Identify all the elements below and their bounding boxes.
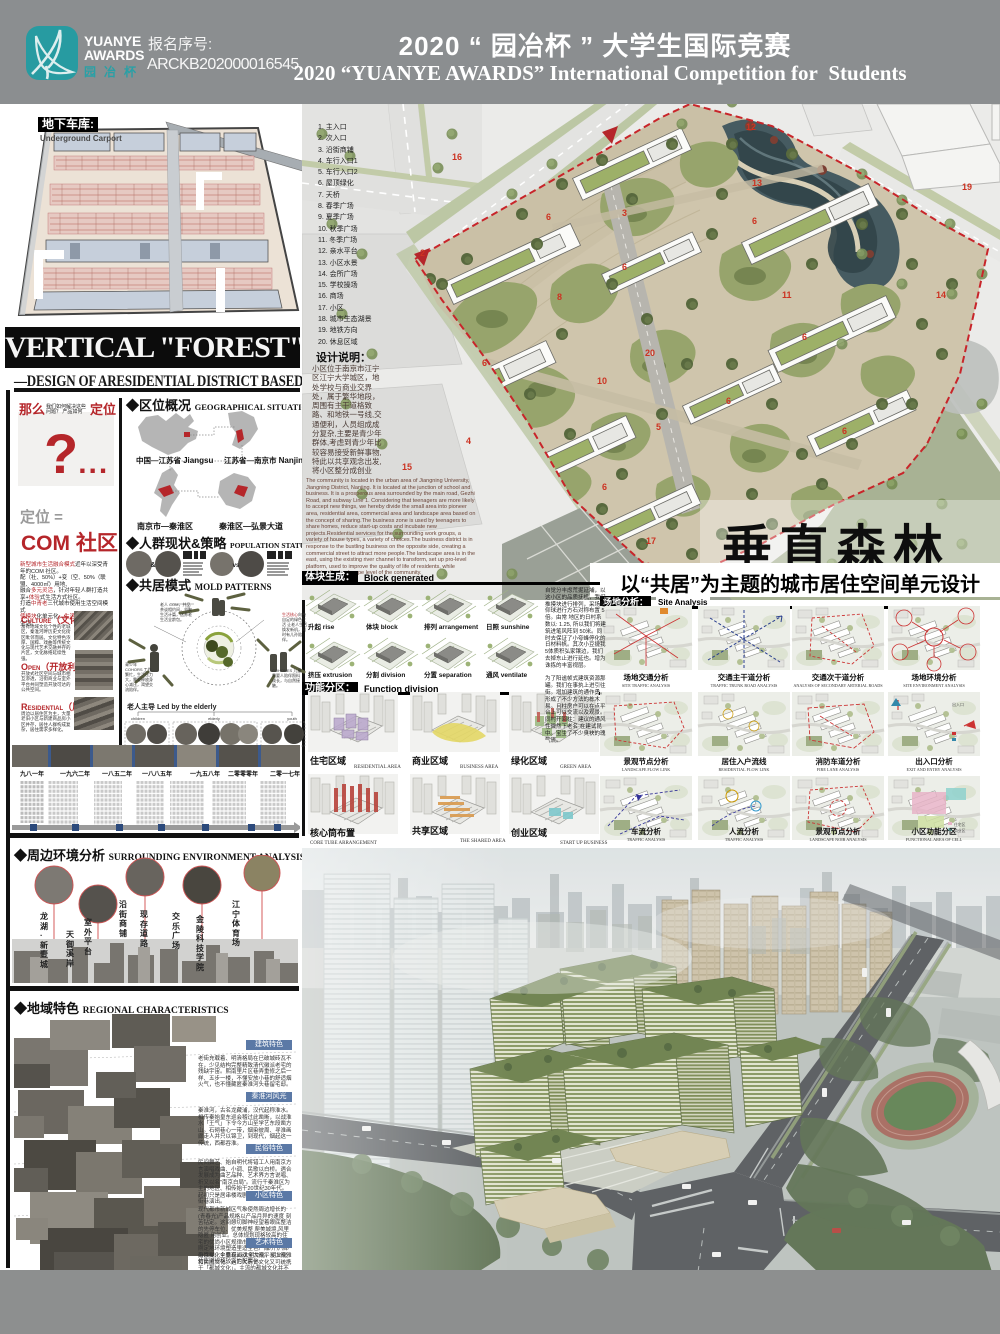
svg-text:youth: youth [287,716,297,721]
svg-text:交通次干道分析: 交通次干道分析 [812,672,865,682]
svg-text:分置 separation: 分置 separation [424,670,472,679]
svg-text:ANALYSIS OF SECONDARY ARTERIAL: ANALYSIS OF SECONDARY ARTERIAL ROADS [793,683,883,688]
svg-text:交通主干道分析: 交通主干道分析 [718,672,771,682]
svg-text:绿化区域: 绿化区域 [511,755,547,766]
svg-text:日照 sunshine: 日照 sunshine [486,622,530,631]
svg-text:住宅区域: 住宅区域 [310,755,346,766]
svg-text:elderly: elderly [208,716,220,721]
svg-text:居住入户流线: 居住入户流线 [722,756,767,766]
svg-text:20: 20 [645,348,655,358]
svg-text:4: 4 [466,436,471,446]
svg-text:景观节点分析: 景观节点分析 [816,826,861,836]
svg-text:12: 12 [746,122,756,132]
svg-text:6: 6 [726,396,731,406]
svg-text:一八八五年: 一八八五年 [142,770,172,778]
svg-text:九八一年: 九八一年 [19,770,44,778]
svg-text:人流分析: 人流分析 [729,826,759,836]
svg-text:通风 ventilate: 通风 ventilate [486,670,528,679]
svg-text:景观节点分析: 景观节点分析 [624,756,669,766]
svg-text:场地环境分析: 场地环境分析 [912,672,957,682]
svg-text:分割 division: 分割 division [366,670,405,679]
svg-text:核心筒布置: 核心筒布置 [310,827,355,838]
svg-text:出入口: 出入口 [952,701,964,707]
svg-text:一八五二年: 一八五二年 [102,770,132,778]
svg-text:创业区域: 创业区域 [510,827,547,838]
svg-text:二零一七年: 二零一七年 [270,770,300,778]
svg-text:16: 16 [452,152,462,162]
svg-text:出入口分析: 出入口分析 [915,756,953,766]
svg-text:6: 6 [602,482,607,492]
svg-text:TRAFFIC TRUNK ROAD ANALYSIS: TRAFFIC TRUNK ROAD ANALYSIS [711,683,778,688]
svg-text:6: 6 [842,426,847,436]
svg-text:TRAFFIC ANALYSIS: TRAFFIC ANALYSIS [725,837,764,842]
svg-text:RESIDENTIAL FLOW LINK: RESIDENTIAL FLOW LINK [719,767,770,772]
svg-text:体块 block: 体块 block [366,622,398,631]
svg-text:6: 6 [802,332,807,342]
svg-text:6: 6 [546,212,551,222]
svg-text:6: 6 [622,262,627,272]
svg-text:&: & [150,562,155,569]
svg-text:LANDSCAPE FLOW LINK: LANDSCAPE FLOW LINK [622,767,671,772]
svg-text:CORE TUBE ARRANGEMENT: CORE TUBE ARRANGEMENT [310,841,377,846]
svg-text:vs: vs [233,563,240,569]
svg-text:13: 13 [752,178,762,188]
svg-text:共享区域: 共享区域 [412,825,448,836]
svg-text:19: 19 [962,182,972,192]
svg-text:二零零零年: 二零零零年 [228,770,258,778]
svg-text:SITE TRAFFIC ANALYSIS: SITE TRAFFIC ANALYSIS [622,683,671,688]
svg-text:START UP BUSINESS: START UP BUSINESS [560,841,608,846]
svg-text:FUNCTIONAL AREA OF CELL: FUNCTIONAL AREA OF CELL [906,837,963,842]
svg-text:消防车道分析: 消防车道分析 [816,756,861,766]
svg-text:挤压 extrusion: 挤压 extrusion [308,670,352,679]
svg-text:10: 10 [597,376,607,386]
svg-text:2: 2 [420,248,425,258]
svg-text:LANDSCAPE NOIR ANALYSIS: LANDSCAPE NOIR ANALYSIS [809,837,867,842]
svg-text:升起 rise: 升起 rise [308,622,335,631]
svg-text:小区功能分区: 小区功能分区 [912,826,957,836]
svg-text:FIRE LANE ANALYSIS: FIRE LANE ANALYSIS [817,767,860,772]
svg-text:EXIT AND ENTRY ANALYSIS: EXIT AND ENTRY ANALYSIS [906,767,962,772]
svg-text:RESIDENTIAL AREA: RESIDENTIAL AREA [354,765,401,770]
svg-text:车流分析: 车流分析 [631,826,661,836]
svg-text:15: 15 [402,462,412,472]
svg-text:6: 6 [482,358,487,368]
svg-text:14: 14 [936,290,946,300]
svg-text:5: 5 [656,422,661,432]
svg-text:THE SHARED AREA: THE SHARED AREA [460,839,506,844]
svg-text:GREEN AREA: GREEN AREA [560,765,592,770]
svg-text:TRAFFIC ANALYSIS: TRAFFIC ANALYSIS [627,837,666,842]
svg-text:SITE ENVIRONMENT ANALYSIS: SITE ENVIRONMENT ANALYSIS [903,683,965,688]
svg-text:children: children [131,716,145,721]
svg-text:3: 3 [622,208,627,218]
svg-text:排列 arrangement: 排列 arrangement [424,622,479,631]
svg-text:一九六二年: 一九六二年 [60,770,90,778]
svg-text:一九五八年: 一九五八年 [190,770,220,778]
svg-text:8: 8 [557,292,562,302]
svg-text:商业区域: 商业区域 [412,755,448,766]
svg-text:6: 6 [752,216,757,226]
svg-text:场地交通分析: 场地交通分析 [624,672,669,682]
svg-text:11: 11 [782,290,792,300]
svg-text:BUSINESS AREA: BUSINESS AREA [460,765,499,770]
